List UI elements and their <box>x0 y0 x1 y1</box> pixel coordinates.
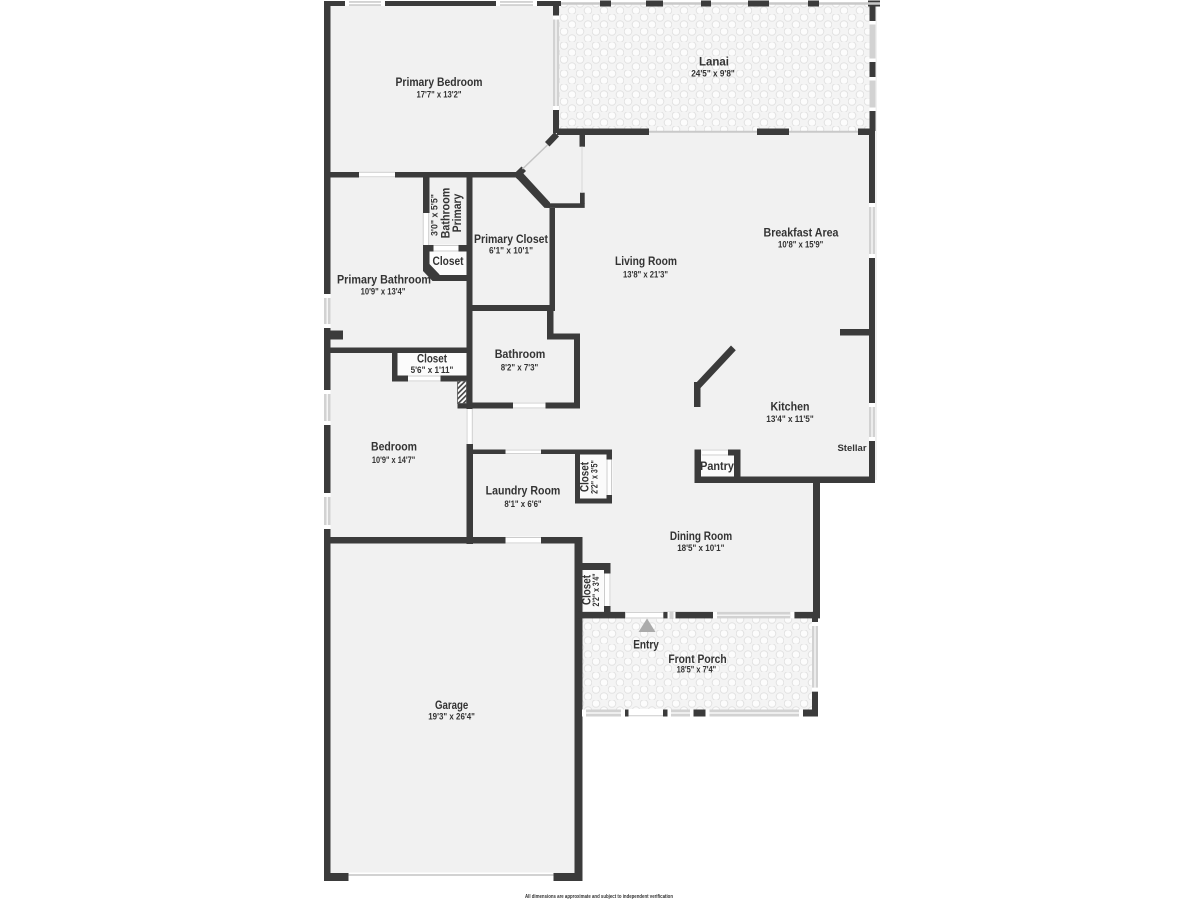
svg-text:Entry: Entry <box>633 640 659 652</box>
svg-text:2'2" x 3'5": 2'2" x 3'5" <box>590 460 601 494</box>
svg-text:Kitchen: Kitchen <box>771 402 810 414</box>
svg-text:Bedroom: Bedroom <box>371 442 417 454</box>
svg-text:Primary Bathroom: Primary Bathroom <box>337 275 431 287</box>
svg-text:Closet: Closet <box>417 354 447 366</box>
svg-text:3'0" x 5'5": 3'0" x 5'5" <box>430 194 441 236</box>
svg-text:10'9" x 14'7": 10'9" x 14'7" <box>372 455 415 466</box>
svg-text:24'5" x 9'8": 24'5" x 9'8" <box>691 69 735 80</box>
svg-text:Pantry: Pantry <box>700 461 734 473</box>
svg-text:Primary Bedroom: Primary Bedroom <box>396 77 483 89</box>
svg-text:Closet: Closet <box>433 256 464 268</box>
svg-text:8'1" x 6'6": 8'1" x 6'6" <box>504 499 541 510</box>
svg-text:18'5" x 7'4": 18'5" x 7'4" <box>677 665 717 676</box>
svg-text:Bathroom: Bathroom <box>495 349 546 361</box>
svg-text:Dining Room: Dining Room <box>670 531 732 543</box>
svg-text:Primary: Primary <box>452 193 464 232</box>
svg-text:Stellar: Stellar <box>837 443 866 454</box>
svg-text:Lanai: Lanai <box>699 57 729 69</box>
svg-text:Bathroom: Bathroom <box>441 188 453 239</box>
svg-text:5'6" x 1'11": 5'6" x 1'11" <box>411 365 454 376</box>
svg-text:19'3" x 26'4": 19'3" x 26'4" <box>428 712 475 723</box>
svg-text:Garage: Garage <box>435 700 468 712</box>
svg-text:2'2" x 3'4": 2'2" x 3'4" <box>591 574 602 607</box>
svg-text:8'2" x 7'3": 8'2" x 7'3" <box>501 363 539 374</box>
svg-text:Living Room: Living Room <box>615 256 677 268</box>
svg-text:10'8" x 15'9": 10'8" x 15'9" <box>778 240 823 251</box>
svg-text:Primary Closet: Primary Closet <box>474 234 548 246</box>
svg-text:10'9" x 13'4": 10'9" x 13'4" <box>361 287 406 298</box>
svg-text:Breakfast Area: Breakfast Area <box>764 228 840 240</box>
svg-text:13'4" x 11'5": 13'4" x 11'5" <box>766 414 813 425</box>
svg-text:6'1" x 10'1": 6'1" x 10'1" <box>489 246 533 257</box>
svg-text:All dimensions are approximate: All dimensions are approximate and subje… <box>525 894 673 900</box>
svg-text:18'5" x 10'1": 18'5" x 10'1" <box>677 543 724 554</box>
svg-text:13'8" x 21'3": 13'8" x 21'3" <box>623 270 668 281</box>
svg-text:17'7" x 13'2": 17'7" x 13'2" <box>417 90 462 101</box>
svg-text:Laundry Room: Laundry Room <box>486 486 561 498</box>
